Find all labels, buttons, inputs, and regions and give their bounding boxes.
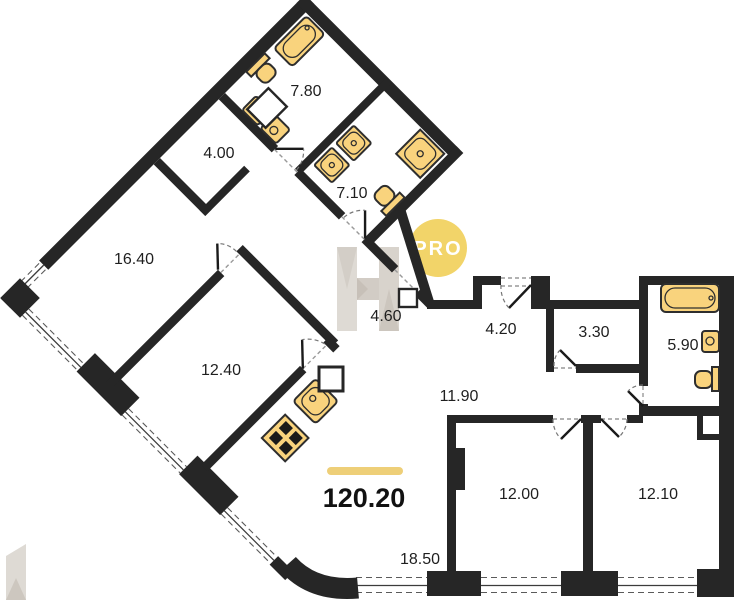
open-door-leaf xyxy=(399,289,417,307)
door-opening xyxy=(221,254,239,272)
wall xyxy=(296,0,459,158)
pillar xyxy=(561,571,618,596)
wall xyxy=(583,419,593,576)
window xyxy=(221,514,270,563)
floor-plan-svg: PRO xyxy=(0,0,734,600)
sink-basin xyxy=(702,331,719,352)
wall-pilaster xyxy=(456,448,465,490)
door-leaf xyxy=(288,340,317,369)
door-leaf xyxy=(560,350,576,366)
room-label-12-10: 12.10 xyxy=(638,486,678,503)
corner-pillar xyxy=(0,278,40,318)
wall xyxy=(627,415,643,423)
wall xyxy=(447,415,456,576)
room-label-7-80: 7.80 xyxy=(290,83,321,100)
door-opening xyxy=(275,150,298,173)
floor-plan: PRO xyxy=(0,0,734,600)
room-label-4-60: 4.60 xyxy=(370,308,401,325)
door-leaf xyxy=(561,419,581,439)
window xyxy=(22,315,77,370)
door-swing-arc xyxy=(553,419,561,439)
wall xyxy=(546,304,554,372)
room-label-4-20: 4.20 xyxy=(485,321,516,338)
wall xyxy=(447,415,553,423)
room-label-7-10: 7.10 xyxy=(336,185,367,202)
total-area-accent-bar xyxy=(327,467,403,475)
window xyxy=(29,309,84,364)
room-label-16-40: 16.40 xyxy=(114,251,154,268)
pillar xyxy=(697,569,734,597)
wall xyxy=(200,166,250,216)
door-leaf xyxy=(509,285,531,308)
room-label-11-90: 11.90 xyxy=(440,388,479,405)
window xyxy=(129,409,187,467)
wall xyxy=(236,245,338,347)
room-label-5-90: 5.90 xyxy=(667,337,698,354)
wall xyxy=(697,434,727,440)
pillar xyxy=(427,571,481,596)
kitchen-stove xyxy=(262,415,309,462)
door-swing-arc xyxy=(217,238,236,257)
door-opening xyxy=(303,345,326,368)
pro-badge-text: PRO xyxy=(413,238,462,260)
door-opening xyxy=(342,217,365,240)
toilet-tank xyxy=(712,367,719,391)
watermark-fragment xyxy=(6,544,26,600)
wall xyxy=(477,276,501,285)
total-area: 120.20 xyxy=(323,467,406,513)
toilet xyxy=(695,367,719,391)
duct-shaft xyxy=(319,367,343,391)
wall xyxy=(639,276,648,386)
room-label-3-30: 3.30 xyxy=(578,324,609,341)
room-label-12-00: 12.00 xyxy=(499,486,539,503)
window xyxy=(228,508,277,557)
door-leaf xyxy=(601,419,619,437)
window xyxy=(224,511,273,560)
door-leaf xyxy=(628,391,643,406)
door-swing-arc xyxy=(619,419,627,437)
window xyxy=(26,312,81,367)
main-windows xyxy=(356,578,697,593)
door-swing-arc xyxy=(501,285,509,308)
room-label-18-50: 18.50 xyxy=(400,551,440,568)
toilet-bowl xyxy=(695,371,712,388)
room-label-4-00: 4.00 xyxy=(203,145,234,162)
door-swing-arc xyxy=(554,350,560,366)
window xyxy=(122,415,180,473)
window xyxy=(125,412,183,470)
basin-body xyxy=(702,331,719,352)
room-label-12-40: 12.40 xyxy=(201,362,241,379)
wall xyxy=(576,364,643,373)
wall xyxy=(427,300,477,309)
bathtub xyxy=(661,284,719,312)
curved-wall xyxy=(288,564,358,589)
total-area-value: 120.20 xyxy=(323,483,406,513)
wall xyxy=(643,406,727,416)
wall xyxy=(546,300,643,309)
